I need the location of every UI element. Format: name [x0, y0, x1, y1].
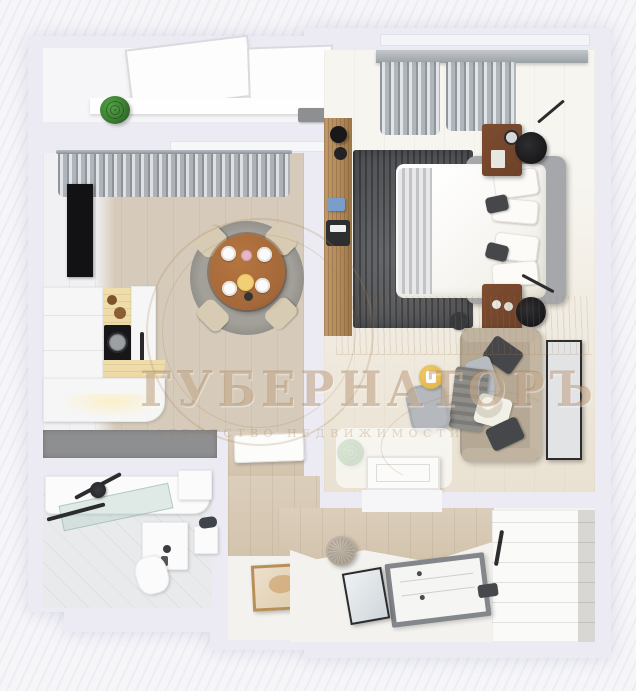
coffee-table-dark: [450, 312, 468, 330]
hall-wardrobe: [492, 510, 595, 642]
shower-head: [90, 482, 106, 498]
console-decor-dark: [334, 147, 347, 160]
tray-paper: [330, 225, 346, 232]
side-table-yellow: [419, 365, 443, 389]
floor-plan-canvas: ГУБЕРНАТОРЪ АГЕНТСТВО НЕДВИЖИМОСТИ: [0, 0, 636, 691]
oven-handle: [140, 332, 144, 362]
console-lamp: [330, 126, 347, 143]
serving-plate: [237, 274, 254, 291]
plate-se: [255, 278, 270, 293]
hall-pouf: [326, 536, 356, 566]
plate-nw: [221, 246, 236, 261]
bed-foot-throw: [398, 168, 432, 294]
balcony-plant: [100, 96, 130, 124]
nightstand-top-book: [491, 150, 505, 168]
side-table-decor: [426, 371, 436, 383]
utility-shaft: [43, 430, 217, 458]
washer-knob: [163, 545, 171, 553]
console-book-blue: [327, 198, 345, 211]
balcony-glazing-panel-2: [247, 45, 335, 106]
door-panel-line: [376, 464, 430, 482]
entrance-door-flat: [384, 552, 491, 628]
bedroom-window-strip: [380, 34, 590, 46]
plate-ne: [257, 247, 272, 262]
bedroom-curtain-left: [380, 62, 440, 135]
undercabinet-light-glow: [60, 394, 164, 418]
plate-sw: [222, 281, 237, 296]
desk-chair-bottom: [516, 297, 546, 327]
bathroom-sink: [178, 470, 212, 500]
entrance-door-seam: [400, 573, 474, 583]
desk-chair-top: [515, 132, 547, 164]
kitchen-jar-2: [114, 307, 126, 319]
kitchen-door-leaf: [234, 433, 305, 463]
tv-panel: [67, 184, 93, 277]
entrance-door-hinge-1: [417, 571, 423, 577]
bedroom-curtain-right: [446, 62, 516, 131]
sofa-backrest: [530, 332, 542, 458]
bedroom-door-threshold: [362, 490, 442, 512]
bath-side-cabinet: [194, 526, 218, 554]
bedroom-wall-art: [546, 340, 582, 460]
wardrobe-side-shade: [578, 510, 595, 642]
bedroom-door-leaf: [366, 456, 440, 490]
sofa-armrest-bottom: [462, 448, 538, 462]
table-cup: [244, 292, 253, 301]
cooktop: [104, 325, 131, 363]
flower-vase: [241, 250, 252, 261]
kitchen-jar-1: [107, 295, 117, 305]
entrance-door-hinge-2: [420, 595, 426, 601]
hall-doormat-small: [477, 583, 499, 599]
dining-table: [209, 234, 285, 310]
nightstand-bottom-decor: [492, 300, 501, 309]
wardrobe-handle: [494, 530, 504, 566]
console-tray: [326, 220, 350, 246]
